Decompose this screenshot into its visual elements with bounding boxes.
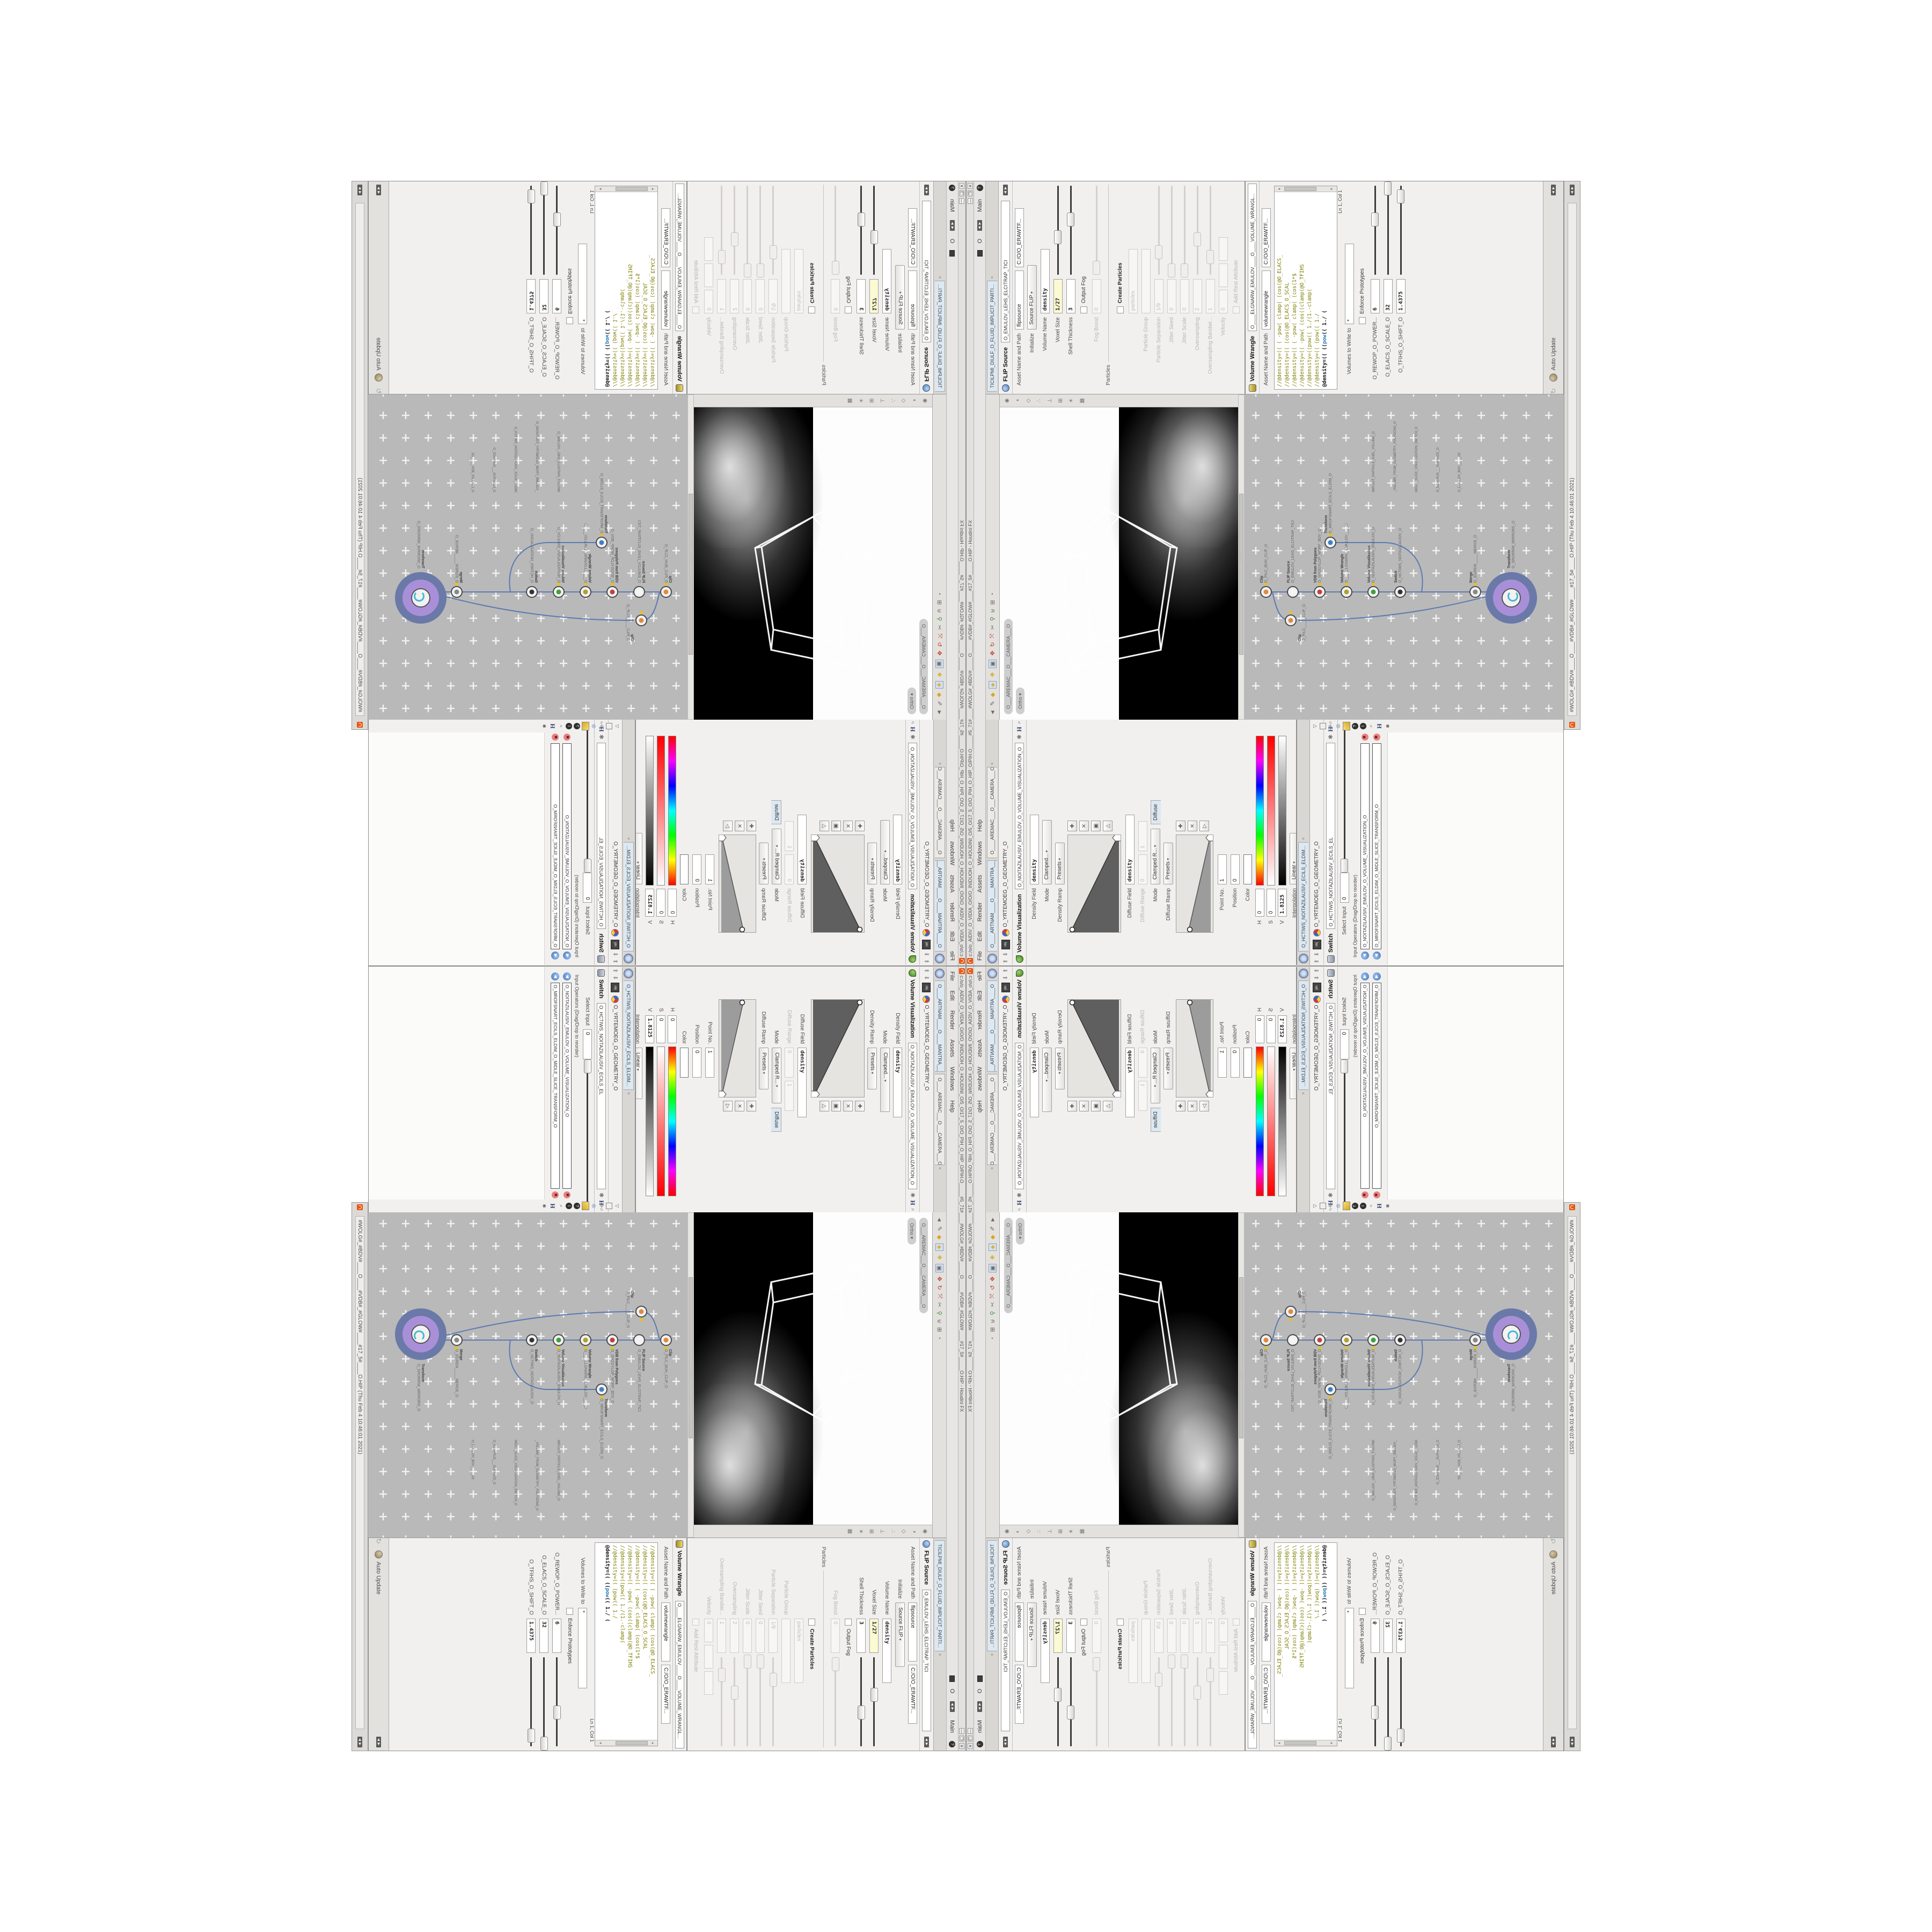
window-titlebar[interactable]: c:/o/o_AIDIV_O_VIDIA_O/O/O_INIDUOH_O_HOU… [958,967,965,1751]
switch-pane-tab[interactable]: O_HCTIWS_NOITAZILAUSIV_ECILS_ELDIM... [1298,842,1308,952]
voxel-size-slider[interactable] [1057,186,1059,275]
sat-gradient-bar[interactable] [1267,1046,1275,1196]
blue-target-icon[interactable]: ◎ [1335,1204,1341,1208]
pane-link-chip[interactable]: ◀ ▶ [1551,1737,1556,1747]
slider-handle[interactable] [871,1688,879,1702]
menu-extra-o[interactable]: O [949,234,956,248]
node-flip-source[interactable] [1287,586,1299,598]
input-operator-item[interactable]: O_MROFSNART_ECILS_ELDIM_O_MIDLE_SLICE_TR… [1372,743,1381,949]
velocity-input[interactable]: 0 [1219,290,1228,313]
node-merge[interactable] [1469,586,1481,598]
flip-asset-name-field[interactable]: O_EMULOV_LEHS_ELCITRAP_TICI [922,201,931,342]
particle-separation-input[interactable]: 1/9 [1154,279,1163,313]
camera-box-icon[interactable]: ▣ [989,660,997,668]
fog-boost-slider[interactable] [835,186,837,275]
pane-tab-camera[interactable]: O____AREMAC___O___CAMERA___O [987,1074,997,1165]
code-scrollbar[interactable]: ▲▼ [1275,186,1337,192]
position-input[interactable]: 0 [693,1048,702,1078]
close-button[interactable]: ✕ [968,1743,973,1749]
select-input-slider[interactable] [1344,1064,1345,1208]
auto-update-label[interactable]: Auto Update [376,1562,382,1594]
help-icon[interactable]: ? [949,185,956,191]
display-light-icon[interactable]: ☀ [858,398,863,403]
remove-item-icon[interactable]: ✖ [1373,1191,1380,1198]
lasso-icon[interactable]: ✎ [989,701,996,706]
input-operator-item[interactable]: O_NOITAZILAUSIV_EMULOV_O_VOLUME_VISUALIZ… [1360,743,1370,949]
nav-down-icon[interactable]: ⬇ [1313,975,1320,980]
display-camera-icon[interactable]: ▦ [847,398,853,403]
select-input-field[interactable]: 0 [583,873,592,903]
menu-help[interactable]: Help [949,815,956,837]
fog-boost-slider[interactable] [835,1657,837,1746]
node-vdb-from-polygons[interactable] [606,1334,618,1346]
pane-expand-icon[interactable]: ✛ [1328,1204,1334,1208]
density-ramp-presets[interactable]: Presets [867,1048,877,1089]
render-view-icon[interactable]: ◔ [936,592,943,596]
slider-handle[interactable] [1181,1655,1188,1668]
desktop-selector[interactable]: Main [949,1715,956,1738]
gear-icon[interactable]: ✱ [909,1192,916,1197]
initialize-dropdown[interactable]: Source FLIP [895,1602,905,1667]
pane-link-chip[interactable]: ◀ ▶ [1003,185,1008,195]
node-clip[interactable] [1260,1334,1272,1346]
viewport-scrollbar[interactable]: :::::: [687,1212,694,1538]
slider-handle[interactable] [554,1706,561,1719]
magnifier-icon[interactable]: ⌕ [909,721,916,724]
camera-path-pill[interactable]: O___AREMAC___O___CAMERA___O [919,619,928,714]
display-normals-icon[interactable]: ⊥ [1047,398,1053,403]
obj-context-icon[interactable]: obj [1313,983,1321,992]
pane-link-chip[interactable]: ◀ ▶ [950,220,955,231]
diffuse-field-input[interactable]: density [1125,815,1135,884]
scale-gizmo-icon[interactable]: ⤧ [936,633,943,638]
position-input[interactable]: 0 [1231,1048,1240,1078]
ramp-delete-point-button[interactable]: ✕ [843,821,853,831]
input-operator-item[interactable]: O_NOITAZILAUSIV_EMULOV_O_VOLUME_VISUALIZ… [1360,983,1370,1189]
view-grid-icon[interactable]: ⊞ [936,1327,943,1332]
nav-down-icon[interactable]: ⬇ [1002,952,1009,957]
display-grid-icon[interactable]: ⊞ [868,398,874,402]
menu-extra-o[interactable]: O [949,1684,956,1699]
density-ramp-widget[interactable] [1067,999,1121,1097]
enforce-prototypes-checkbox[interactable] [1359,317,1366,324]
rotate-gizmo-icon[interactable]: ↻ [989,642,996,647]
node-volume-visualization[interactable] [553,586,565,598]
particle-separation-slider[interactable] [773,186,774,275]
help-icon[interactable]: ? [949,1741,956,1747]
output-fog-checkbox[interactable] [1080,1619,1087,1626]
slider-handle[interactable] [832,261,840,275]
pane-tab-camera[interactable]: O____AREMAC___O___CAMERA___O [935,1074,945,1165]
pane-tab-mantra[interactable]: O____ARTNAM____O____MANTRA____O [935,860,945,952]
display-grid-icon[interactable]: ⊞ [1058,1529,1064,1533]
display-wire-icon[interactable]: ◇ [1026,399,1031,403]
blue-target-icon[interactable]: ◎ [591,1204,597,1208]
material-sphere-icon[interactable]: ◆ [989,1235,996,1239]
val-input[interactable]: 1.8125 [645,1015,654,1043]
ramp-add-point-button[interactable]: ✚ [747,821,756,831]
lasso-icon[interactable]: ✎ [936,701,943,706]
material-diamond-icon[interactable]: ◈ [989,681,997,689]
particle-separation-input[interactable]: 1/9 [769,279,778,313]
node-vdb-from-polygons[interactable] [1314,1334,1326,1346]
wrangle-asset-name-field[interactable]: O____ELGNARW_EMULOV____O____VOLUME_WRANG… [1248,1601,1257,1748]
auto-update-label[interactable]: Auto Update [1550,338,1557,370]
menu-windows[interactable]: Windows [977,1062,983,1096]
viewport-scrollbar[interactable]: :::::: [687,394,694,720]
switch-pane-tab[interactable]: O_HCTIWS_NOITAZILAUSIV_ECILS_ELDIM... [624,980,634,1090]
diffuse-range-max-input[interactable]: 1 [1138,821,1147,851]
fog-boost-input[interactable]: 0 [1092,279,1101,313]
pane-expand-icon[interactable]: ✛ [1328,724,1334,728]
pane-maximize-icon[interactable]: ▽ [614,1204,620,1208]
remove-item-icon[interactable]: ✖ [1373,734,1380,741]
gear-icon[interactable]: ✱ [541,724,547,728]
fog-boost-slider[interactable] [1096,1657,1097,1746]
slider-handle[interactable] [1371,213,1379,226]
close-button[interactable]: ✕ [960,1743,965,1749]
flip-asset-name-field[interactable]: O_EMULOV_LEHS_ELCITRAP_TICI [1001,1590,1010,1731]
oversampling-input[interactable]: 2 [730,1619,740,1653]
minimize-button[interactable]: — [960,1728,965,1734]
software-path-field[interactable]: C:/O/O_ERAWTF... [909,1665,918,1724]
particle-separation-slider[interactable] [1158,1657,1160,1746]
node-switch[interactable] [1394,586,1406,598]
viewport-canvas[interactable]: O___AREMAC___O___CAMERA___O Ortho ▾ [694,1212,932,1525]
magnet-icon[interactable]: ⊎ [936,609,943,613]
sat-gradient-bar[interactable] [657,1046,665,1196]
projection-pill[interactable]: Ortho ▾ [908,1218,916,1245]
gear-icon[interactable]: ✱ [1385,724,1391,728]
second-window-titlebar[interactable]: #WOLG#_#BDV#____O____#VDB#_#GLOW#____#17… [352,1202,368,1751]
ramp-next-button[interactable]: ▷ [723,1101,733,1111]
node-volume-wrangle[interactable] [580,1334,591,1346]
jitter-scale-slider[interactable] [747,186,749,275]
magnet-icon[interactable]: ⊎ [989,609,996,613]
shell-thickness-input[interactable]: 3 [857,1619,866,1653]
node-switch[interactable] [526,1334,538,1346]
tab-close-icon[interactable]: ✕ [990,762,994,765]
node-volume-visualization[interactable] [1367,1334,1379,1346]
tab-close-icon[interactable]: ✕ [627,1092,631,1095]
enforce-prototypes-checkbox[interactable] [567,317,574,324]
slider-handle[interactable] [1384,1737,1392,1751]
switch-asset-name-field[interactable]: O_HCTIWS_NOITAZILAUSIV_ECILS_EL [597,1003,606,1189]
viewport-canvas[interactable]: O___AREMAC___O___CAMERA___O Ortho ▾ [1000,1212,1238,1525]
houdini-h-icon[interactable]: H [1375,1203,1384,1208]
menu-help[interactable]: Help [977,815,983,837]
flip-pane-tab[interactable]: TICILPMI_DIULF_O_FLUID_IMPLICIT_PARTI... [987,1540,997,1651]
velocity-input-z[interactable] [1219,1671,1228,1695]
select-input-slider[interactable] [587,1064,589,1208]
material-sphere-icon[interactable]: ◆ [936,1235,943,1239]
magnifier-icon[interactable]: ⌕ [1016,721,1023,724]
menu-windows[interactable]: Windows [949,837,956,870]
slider-handle[interactable] [554,213,561,226]
diffuse-range-max-input[interactable]: 1 [785,1081,794,1111]
update-mode-icon[interactable] [375,1550,383,1558]
ramp-extend-button[interactable]: ▣ [1091,821,1101,831]
bake-icon[interactable]: ❖ [989,672,996,677]
magnet-icon[interactable]: ⊎ [936,1319,943,1323]
particles-input[interactable]: particles [795,1619,804,1683]
houdini-h-icon[interactable]: H [1015,727,1023,731]
menu-edit[interactable]: Edit [949,986,956,1006]
diffuse-range-min-input[interactable]: 0 [785,1048,794,1078]
pane-link-chip[interactable]: ◀ ▶ [357,1737,362,1747]
diffuse-ramp-presets[interactable]: Presets [1163,843,1173,884]
nav-up-icon[interactable]: ⬆ [923,968,930,973]
gear-icon[interactable]: ✱ [598,1192,605,1197]
snap-icon[interactable]: ⚲ [936,617,943,621]
slider-handle[interactable] [1093,261,1100,275]
magnifier-icon[interactable]: ⌕ [1016,1208,1023,1211]
add-rest-attribute-checkbox[interactable] [693,306,700,313]
select-arrow-icon[interactable]: ◄ [990,1217,996,1223]
slider-handle[interactable] [757,1655,765,1668]
window-titlebar[interactable]: c:/o/o_AIDIV_O_VIDIA_O/O/O_INIDUOH_O_HOU… [967,181,974,965]
diffuse-ramp-presets[interactable]: Presets [1163,1048,1173,1089]
val-input[interactable]: 1.8125 [645,889,654,917]
pane-expand-icon[interactable]: ✛ [598,724,604,728]
magnifier-icon[interactable]: ⌕ [558,724,564,727]
power-input[interactable]: 6 [1371,1619,1380,1653]
viz-asset-name-field[interactable]: O_NOITAZILAUSIV_EMULOV_O_VOLUME_VISUALIZ… [1015,1043,1024,1189]
camera-box-icon[interactable]: ▣ [935,1264,943,1272]
menu-help[interactable]: Help [949,1095,956,1117]
switch-asset-name-field[interactable]: O_HCTIWS_NOITAZILAUSIV_ECILS_EL [1326,743,1335,929]
slider-handle[interactable] [1181,264,1188,277]
help-icon[interactable]: ? [574,1203,580,1209]
node-path[interactable]: O_YRTEMOEG_O_GEOMETRY_O [1002,841,1008,927]
wrangle-name-input[interactable]: volumewrangle [662,270,671,330]
shift-input[interactable]: 1.4375 [527,1619,536,1653]
node-path[interactable]: O_YRTEMOEG_O_GEOMETRY_O [924,1005,930,1091]
vex-code-editor[interactable]: //@density=(( ( -pow( clamp( (cos(@O_ELA… [1274,1542,1337,1746]
wrangle-name-input[interactable]: volumewrangle [1262,1602,1271,1662]
slider-handle[interactable] [528,1729,536,1743]
hue-gradient-bar[interactable] [1256,736,1264,885]
slider-handle[interactable] [744,264,752,277]
display-grid-icon[interactable]: ⊞ [1058,398,1064,402]
camera-box-icon[interactable]: ▣ [935,660,943,668]
nav-up-icon[interactable]: ⬆ [1002,968,1009,973]
select-arrow-icon[interactable]: ◄ [936,709,943,715]
snap-icon[interactable]: ⚲ [989,1311,996,1315]
scale-gizmo-icon[interactable]: ⤧ [989,633,996,638]
pane-link-chip[interactable]: ◀ ▶ [924,1737,929,1747]
pane-link-chip[interactable]: ◀ ▶ [977,220,982,231]
node-flip-source[interactable] [633,1334,645,1346]
sat-input[interactable]: 0 [656,1015,665,1043]
slider-handle[interactable] [1371,1706,1379,1719]
voxel-size-input[interactable]: 1/27 [1053,1619,1063,1653]
view-grid-icon[interactable]: ⊞ [936,600,943,605]
menu-edit[interactable]: Edit [977,986,983,1006]
diffuse-range-min-input[interactable]: 0 [785,854,794,884]
ramp-next-button[interactable]: ▷ [1199,821,1209,831]
refresh-icon[interactable]: ↻ [375,388,383,394]
move-gizmo-icon[interactable]: ✥ [936,1276,943,1281]
initialize-dropdown[interactable]: Source FLIP [1027,1602,1037,1667]
refresh-icon[interactable]: ↻ [375,1538,383,1544]
move-gizmo-icon[interactable]: ✥ [989,1276,996,1281]
display-flag-icon[interactable] [1343,1202,1350,1210]
flip-pane-tab[interactable]: TICILPMI_DIULF_O_FLUID_IMPLICIT_PARTI... [935,1540,945,1651]
power-input[interactable]: 6 [553,279,562,313]
hue-input[interactable]: 0 [1255,1015,1264,1043]
pane-tab-camera[interactable]: O____AREMAC___O___CAMERA___O [935,767,945,858]
jitter-scale-slider[interactable] [747,1657,749,1746]
jitter-seed-slider[interactable] [1171,186,1173,275]
velocity-input[interactable]: 0 [705,1619,714,1642]
slider-handle[interactable] [744,1655,752,1668]
viewport-scrollbar[interactable]: :::::: [1238,394,1245,720]
houdini-h-icon[interactable]: H [909,727,917,731]
slider-handle[interactable] [528,189,536,203]
ramp-add-point-button[interactable]: ✚ [1176,1101,1185,1111]
particles-input[interactable]: particles [1129,1619,1138,1683]
pane-tab-mantra[interactable]: O____ARTNAM____O____MANTRA____O [987,860,997,952]
remove-item-icon[interactable]: ✖ [564,734,571,741]
tab-close-icon[interactable]: ✕ [938,276,942,279]
density-ramp-presets[interactable]: Presets [1055,843,1065,884]
restore-button[interactable]: ❐ [968,191,973,196]
bake-icon[interactable]: ❖ [936,1255,943,1260]
menu-assets[interactable]: Assets [977,870,983,897]
viewport-scrollbar[interactable]: :::::: [1238,1212,1245,1538]
slider-handle[interactable] [770,246,778,260]
jitter-scale-input[interactable]: 0 [743,279,752,313]
pane-link-chip[interactable]: ◀ ▶ [1570,185,1575,195]
ramp-add-point-button[interactable]: ✚ [855,1101,865,1111]
node-transform[interactable] [1324,1384,1336,1395]
oversampling-bandwidth-slider[interactable] [1210,186,1211,275]
select-arrow-icon[interactable]: ◄ [990,709,996,715]
input-operator-item[interactable]: O_MROFSNART_ECILS_ELDIM_O_MIDLE_SLICE_TR… [551,983,560,1189]
desktop-selector[interactable]: Main [977,194,983,217]
pane-radial-menu-icon[interactable] [624,954,634,963]
slider-handle[interactable] [541,181,548,195]
display-wire-icon[interactable]: ◇ [901,1529,906,1534]
pane-link-chip[interactable]: ◀ ▶ [1003,1737,1008,1747]
pane-maximize-icon[interactable]: ▽ [614,724,620,728]
diffuse-ramp-presets[interactable]: Presets [759,843,769,884]
power-slider[interactable] [557,186,558,275]
scissors-icon[interactable]: ✂ [936,1302,943,1307]
slider-handle[interactable] [858,213,866,226]
add-rest-attribute-checkbox[interactable] [693,1619,700,1626]
remove-item-icon[interactable]: ✖ [1362,1191,1368,1198]
gear-icon[interactable]: ✱ [1327,735,1334,740]
select-input-slider[interactable] [1344,724,1345,868]
menu-assets[interactable]: Assets [949,1035,956,1062]
close-button[interactable]: ✕ [968,183,973,189]
menu-render[interactable]: Render [977,1006,983,1035]
select-input-field[interactable]: 0 [583,1029,592,1059]
code-scrollbar[interactable]: ▲▼ [1275,1740,1337,1746]
flip-pane-tab[interactable]: TICILPMI_DIULF_O_FLUID_IMPLICIT_PARTI... [987,281,997,392]
houdini-h-icon[interactable]: H [548,1203,557,1208]
hue-input[interactable]: 0 [668,889,677,917]
wrangle-asset-name-field[interactable]: O____ELGNARW_EMULOV____O____VOLUME_WRANG… [1248,184,1257,331]
nav-up-icon[interactable]: ⬆ [1313,959,1320,964]
fog-boost-slider[interactable] [1096,186,1097,275]
particle-separation-slider[interactable] [773,1657,774,1746]
gear-icon[interactable]: ✱ [1385,1204,1391,1208]
velocity-input-z[interactable] [1219,237,1228,261]
position-input[interactable]: 0 [693,854,702,884]
shell-thickness-input[interactable]: 3 [1066,279,1075,313]
display-light-icon[interactable]: ☀ [858,1529,863,1534]
node-merge[interactable] [451,586,463,598]
menu-file[interactable]: File [949,946,956,965]
ramp-add-point-button[interactable]: ✚ [1067,1101,1077,1111]
slider-handle[interactable] [757,264,765,277]
oversampling-bandwidth-input[interactable]: 1 [1206,279,1215,313]
particle-group-input[interactable] [782,1619,791,1683]
selected-node-badge[interactable] [395,1308,447,1360]
slider-handle[interactable] [584,1059,592,1073]
create-particles-checkbox[interactable] [1117,306,1124,313]
diffuse-tab[interactable]: Diffuse [772,800,782,824]
lasso-icon[interactable]: ✎ [936,1226,943,1231]
remove-item-icon[interactable]: ✖ [564,1191,571,1198]
oversampling-bandwidth-input[interactable]: 1 [1206,1619,1215,1653]
minimize-button[interactable]: — [960,198,965,204]
select-arrow-icon[interactable]: ◄ [936,1217,943,1223]
node-clip-2[interactable] [635,1306,647,1318]
pane-radial-menu-icon[interactable] [987,969,997,978]
material-sphere-icon[interactable]: ◆ [989,692,996,697]
render-view-icon[interactable]: ◔ [990,1336,996,1340]
scissors-icon[interactable]: ✂ [989,625,996,630]
output-fog-checkbox[interactable] [845,1619,852,1626]
second-window-titlebar[interactable]: #WOLG#_#BDV#____O____#VDB#_#GLOW#____#17… [1564,181,1580,730]
slider-handle[interactable] [731,232,739,246]
shell-thickness-input[interactable]: 3 [857,279,866,313]
slider-handle[interactable] [1093,1657,1100,1671]
node-flip-source[interactable] [1287,1334,1299,1346]
obj-context-icon[interactable]: obj [1313,940,1321,949]
val-input[interactable]: 1.8125 [1278,1015,1287,1043]
node-clip-2[interactable] [1285,1306,1297,1318]
volumes-input[interactable]: * [1345,1608,1354,1688]
render-view-icon[interactable]: ◔ [990,592,996,596]
jitter-seed-slider[interactable] [760,1657,762,1746]
input-operator-item[interactable]: O_NOITAZILAUSIV_EMULOV_O_VOLUME_VISUALIZ… [563,983,572,1189]
ramp-flip-button[interactable]: △ [1103,1101,1113,1111]
houdini-h-icon[interactable]: H [1015,1200,1023,1205]
tab-close-icon[interactable]: ✕ [990,276,994,279]
material-diamond-icon[interactable]: ◈ [989,1243,997,1251]
nav-down-icon[interactable]: ⬇ [612,975,619,980]
sat-input[interactable]: 0 [1267,1015,1276,1043]
node-clip[interactable] [660,586,672,598]
density-field-input[interactable]: density [1030,815,1039,884]
close-button[interactable]: ✕ [960,183,965,189]
jitter-scale-slider[interactable] [1184,186,1185,275]
flip-name-input[interactable]: flipsource [909,1602,918,1662]
menu-file[interactable]: File [949,967,956,986]
diffuse-mode-dropdown[interactable]: Clamped R... [1151,1048,1160,1103]
mode-dropdown[interactable]: Clamped... [1042,1048,1052,1112]
diffuse-tab[interactable]: Diffuse [772,1108,782,1132]
nav-down-icon[interactable]: ⬇ [1002,975,1009,980]
node-path[interactable]: O_YRTEMOEG_O_GEOMETRY_O [924,841,930,927]
create-particles-checkbox[interactable] [809,1619,816,1626]
rotate-gizmo-icon[interactable]: ↻ [936,642,943,647]
